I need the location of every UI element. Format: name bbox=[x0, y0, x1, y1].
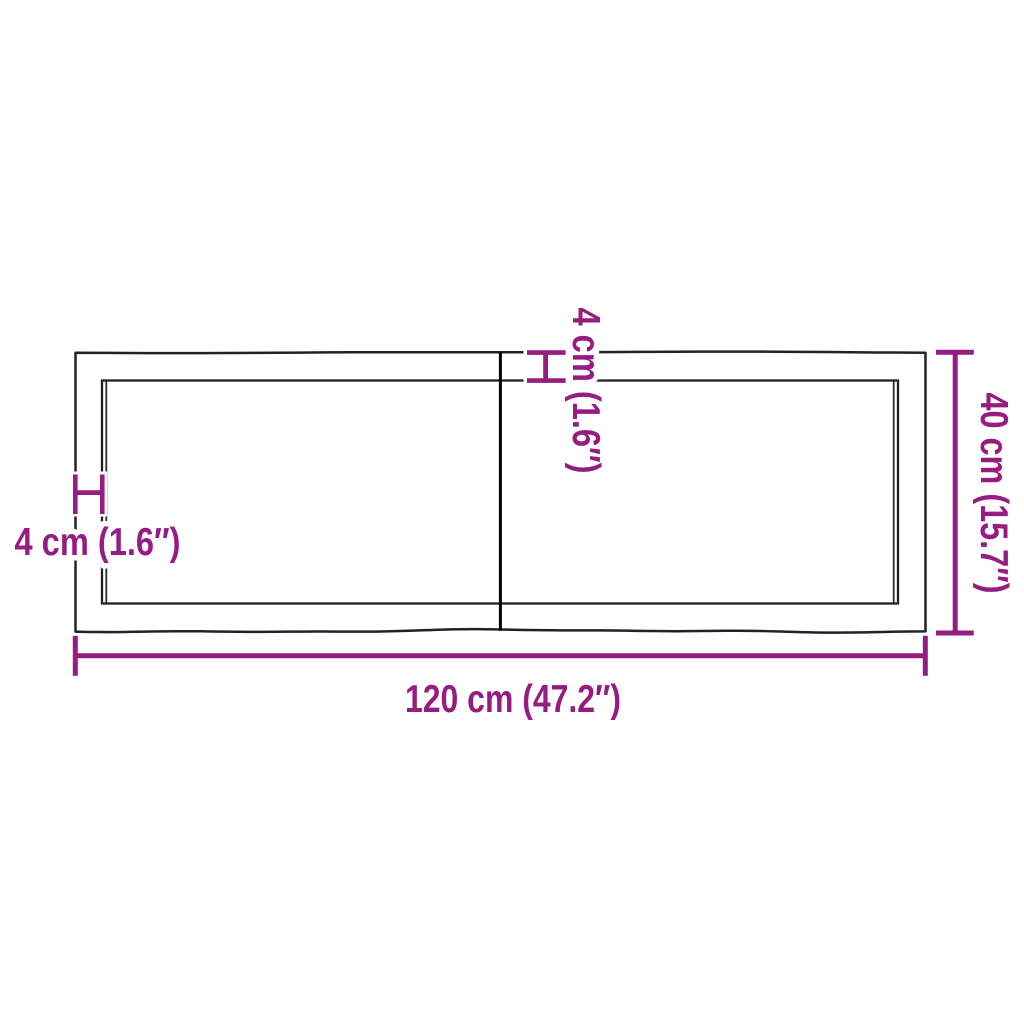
svg-text:4 cm (1.6″): 4 cm (1.6″) bbox=[564, 308, 607, 474]
svg-text:40 cm (15.7″): 40 cm (15.7″) bbox=[972, 393, 1015, 594]
svg-text:120 cm (47.2″): 120 cm (47.2″) bbox=[405, 678, 621, 721]
svg-text:4 cm (1.6″): 4 cm (1.6″) bbox=[15, 521, 181, 564]
